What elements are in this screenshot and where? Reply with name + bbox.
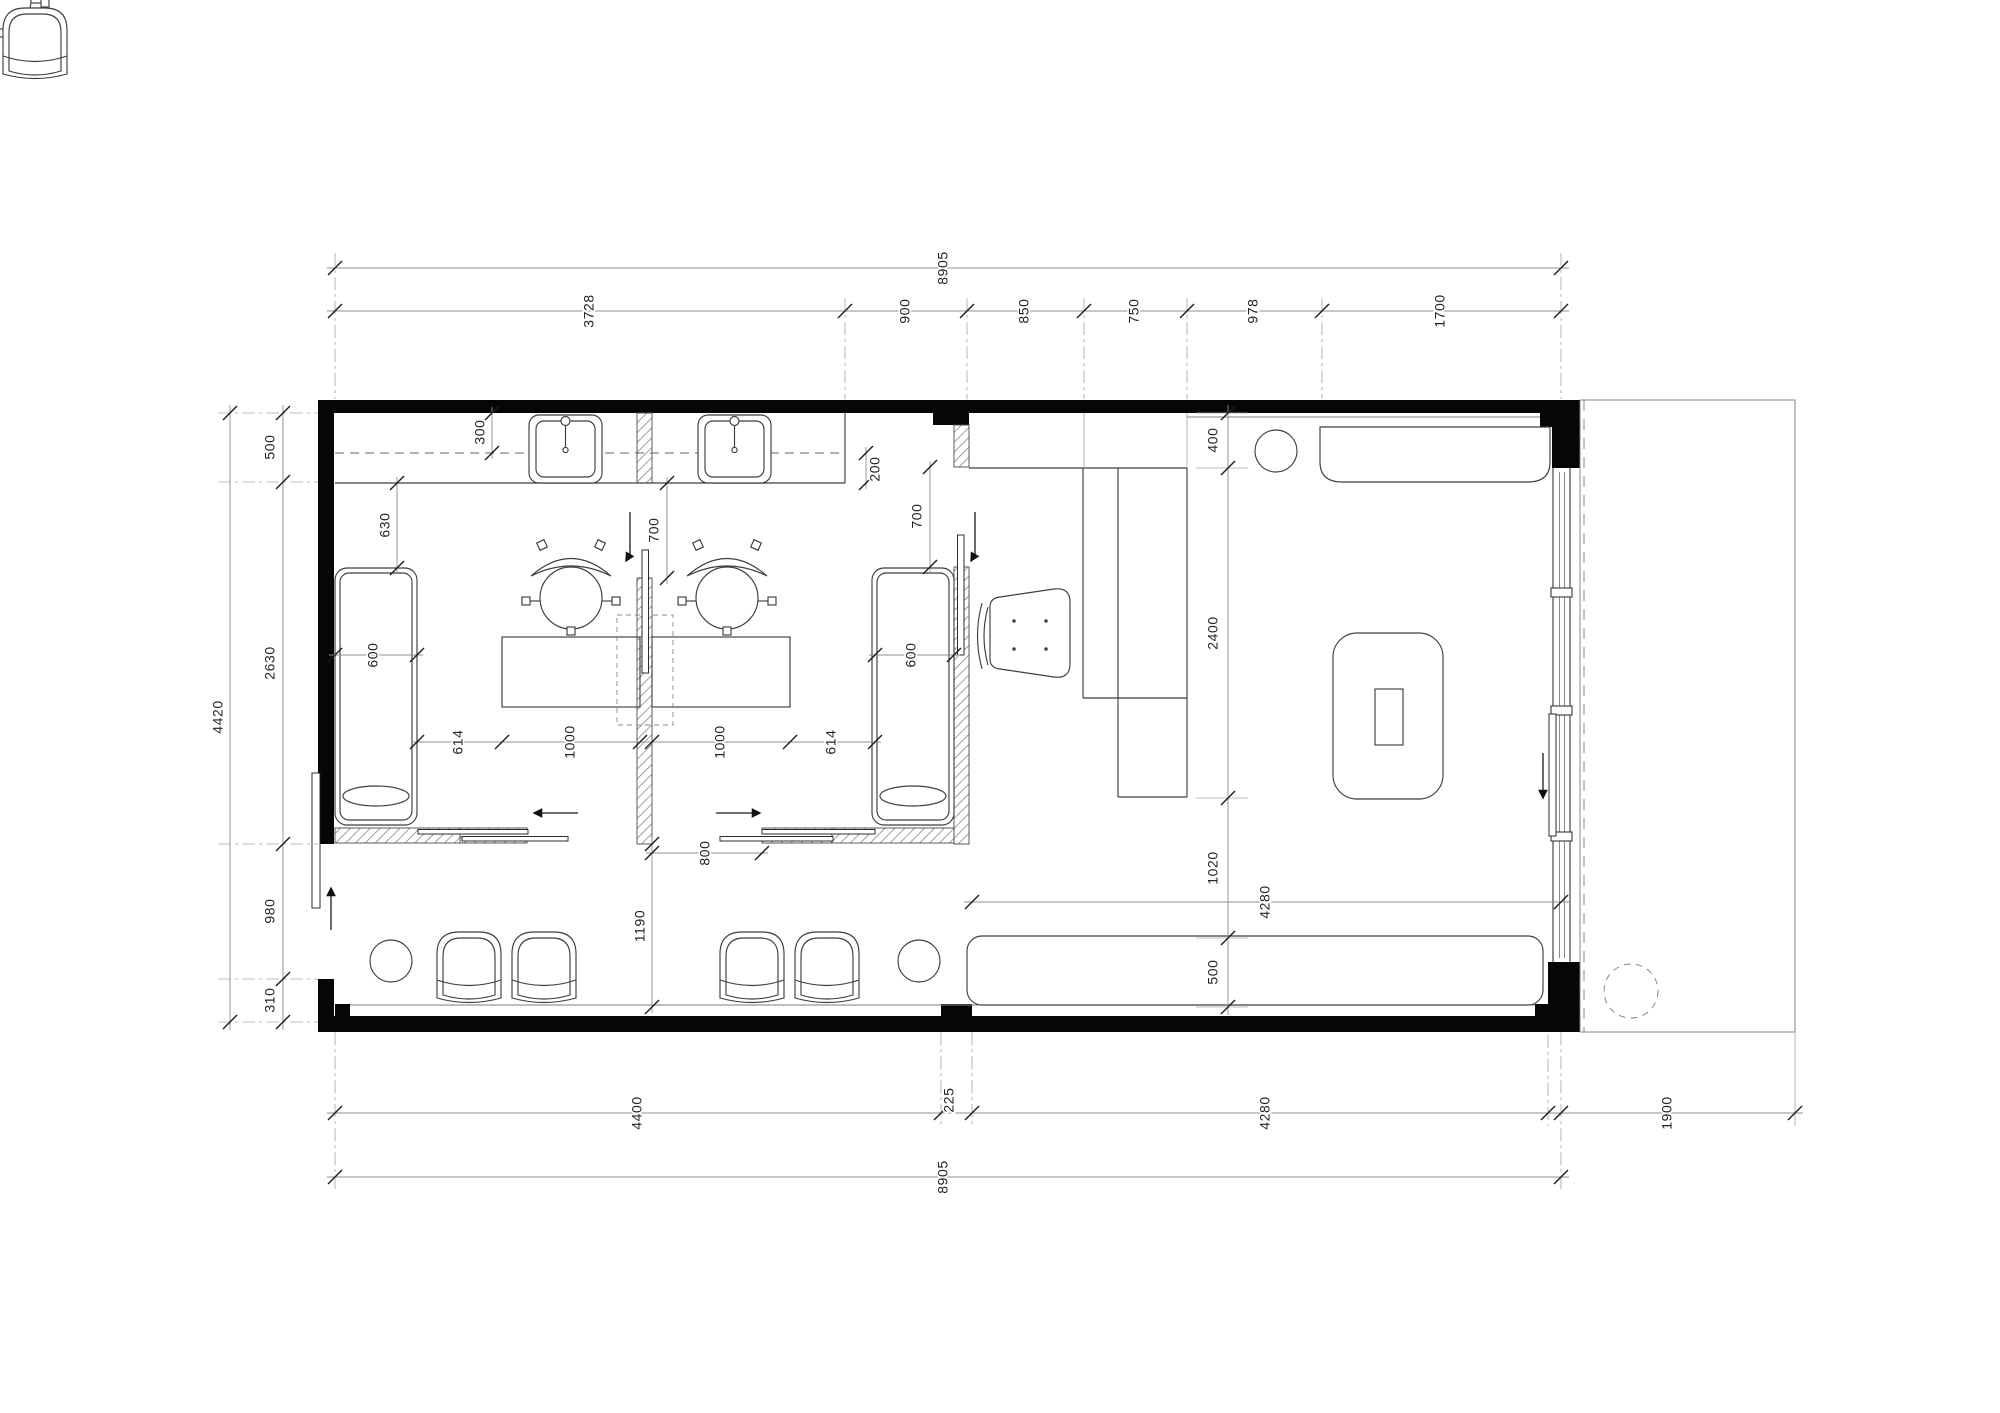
dim-room1-chain-1: 1000 bbox=[562, 725, 578, 759]
dim-bed1-width: 600 bbox=[365, 642, 381, 667]
extension-lines bbox=[218, 253, 1795, 1190]
partition2-door-leaf bbox=[958, 535, 965, 655]
waiting-chair-4 bbox=[795, 932, 859, 1003]
sofa bbox=[967, 936, 1543, 1005]
terrace bbox=[1580, 400, 1795, 1032]
wall-pier-bottom-right bbox=[1548, 962, 1580, 1016]
waiting-chair-2 bbox=[512, 932, 576, 1003]
desk-room1 bbox=[502, 637, 640, 707]
room2-door-leaf bbox=[720, 837, 833, 842]
saddle-chair-room2 bbox=[678, 540, 776, 635]
saddle-chair-room1 bbox=[522, 540, 620, 635]
dim-top-chain-3: 750 bbox=[1126, 298, 1142, 323]
dim-right-chain-1: 2400 bbox=[1205, 616, 1221, 650]
wall-step-left bbox=[335, 1004, 350, 1016]
dim-top-chain-0: 3728 bbox=[581, 294, 597, 328]
waiting-chair-1 bbox=[437, 932, 501, 1003]
waiting-chair-3 bbox=[720, 932, 784, 1003]
wall-notch-right bbox=[1540, 413, 1552, 427]
reception-cabinet bbox=[1320, 427, 1550, 482]
dim-bed-clearance: 630 bbox=[377, 512, 393, 537]
dim-bottom-overall: 8905 bbox=[935, 1160, 951, 1194]
lounge-table bbox=[1333, 633, 1443, 799]
window-wall bbox=[1543, 468, 1572, 962]
dim-top-overall: 8905 bbox=[935, 251, 951, 285]
dim-bottom-chain-2: 4280 bbox=[1257, 1096, 1273, 1130]
dim-bed2-width: 600 bbox=[903, 642, 919, 667]
room2-door-track bbox=[762, 830, 875, 835]
dim-top-chain-5: 1700 bbox=[1432, 294, 1448, 328]
entry-door-leaf bbox=[312, 773, 320, 908]
dim-corridor: 1190 bbox=[632, 910, 648, 943]
room1-door-track bbox=[418, 830, 528, 835]
dim-sliding-door: 800 bbox=[697, 840, 713, 865]
dim-left-chain-3: 310 bbox=[262, 987, 278, 1012]
dim-left-overall: 4420 bbox=[210, 700, 226, 734]
dim-bottom-chain-0: 4400 bbox=[629, 1096, 645, 1130]
office-chair bbox=[978, 589, 1071, 677]
dim-right-chain-2: 1020 bbox=[1205, 851, 1221, 885]
partition1-door-leaf bbox=[642, 550, 649, 673]
dim-lounge-width: 4280 bbox=[1257, 885, 1273, 919]
side-table-1 bbox=[370, 940, 412, 982]
window-sliding-pane bbox=[1549, 714, 1556, 836]
dashed-circle-marker bbox=[1604, 964, 1658, 1018]
dim-counter-front: 200 bbox=[867, 456, 883, 481]
room1-door-leaf bbox=[462, 837, 568, 842]
partition2-upper bbox=[954, 425, 969, 467]
dim-right-chain-0: 400 bbox=[1205, 427, 1221, 452]
dim-left-chain-0: 500 bbox=[262, 434, 278, 459]
dim-right-chain-3: 500 bbox=[1205, 959, 1221, 984]
dim-left-chain-1: 2630 bbox=[262, 646, 278, 680]
dim-room2-door: 700 bbox=[909, 503, 925, 528]
dim-counter-back: 300 bbox=[472, 419, 488, 444]
stool-plant bbox=[1255, 430, 1297, 472]
wall-step-right bbox=[1535, 1004, 1548, 1016]
dim-left-chain-2: 980 bbox=[262, 898, 278, 923]
terrace-outline bbox=[1580, 400, 1795, 1032]
dim-room1-door: 700 bbox=[646, 517, 662, 542]
dim-room2-chain-1: 614 bbox=[823, 729, 839, 754]
dim-top-chain-4: 978 bbox=[1245, 298, 1261, 323]
wall-header-partition2 bbox=[933, 413, 969, 425]
faucet-icon bbox=[561, 417, 570, 426]
partition1-upper bbox=[637, 413, 652, 483]
wall-pier-top-right bbox=[1552, 413, 1580, 468]
partition2-door-arrow bbox=[971, 512, 975, 561]
window-mullion-1 bbox=[1551, 588, 1572, 597]
wall-pier-center bbox=[941, 1004, 972, 1016]
dim-room1-chain-0: 614 bbox=[450, 729, 466, 754]
sink-1 bbox=[529, 415, 602, 483]
dim-top-chain-1: 900 bbox=[897, 298, 913, 323]
floor-plan: 8905 3728 900 850 750 978 1700 4420 500 … bbox=[0, 0, 2000, 1413]
side-table-2 bbox=[898, 940, 940, 982]
dimension-ticks bbox=[223, 261, 1802, 1184]
dim-room2-chain-0: 1000 bbox=[712, 725, 728, 759]
dim-bottom-chain-1: 225 bbox=[941, 1087, 957, 1112]
drawing-sheet: 8905 3728 900 850 750 978 1700 4420 500 … bbox=[0, 0, 2000, 1413]
wall-top bbox=[318, 400, 1580, 413]
dim-terrace-width: 1900 bbox=[1659, 1096, 1675, 1130]
dim-top-chain-2: 850 bbox=[1016, 298, 1032, 323]
wall-bottom bbox=[318, 1016, 1580, 1032]
faucet-icon bbox=[730, 417, 739, 426]
partition1-door-arrow bbox=[626, 512, 630, 561]
treatment-bed-2 bbox=[872, 568, 954, 825]
sink-2 bbox=[698, 415, 771, 483]
treatment-bed-1 bbox=[335, 568, 417, 825]
